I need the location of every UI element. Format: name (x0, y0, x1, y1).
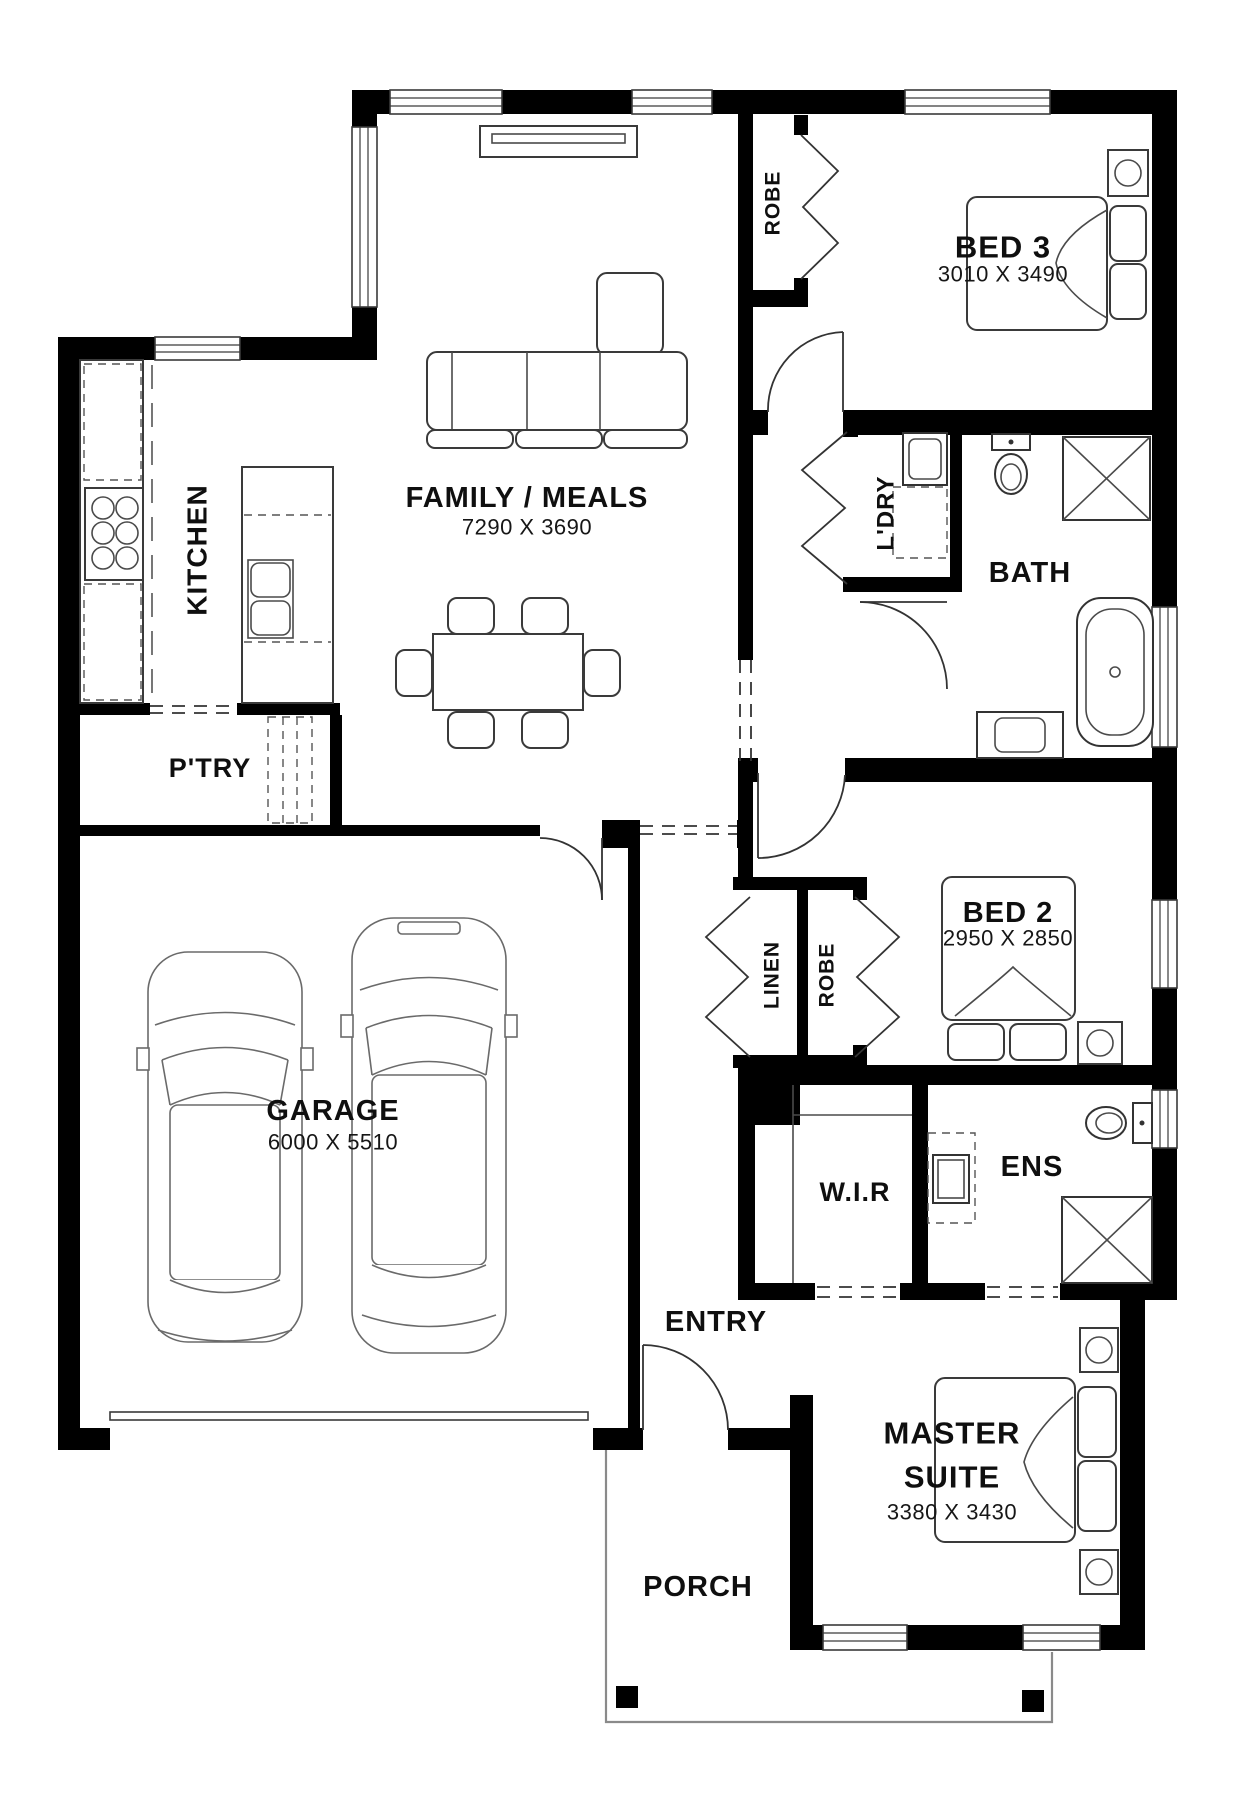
porch-post (616, 1686, 638, 1708)
shower (1063, 437, 1150, 520)
bath-fittings (977, 434, 1153, 758)
cooktop (85, 488, 143, 580)
room-label-laundry: L'DRY (873, 475, 900, 550)
island-bench (242, 467, 333, 703)
room-label-family: FAMILY / MEALS (406, 482, 649, 514)
dining-table (433, 634, 583, 710)
room-label-robe-bed2: ROBE (816, 943, 839, 1008)
room-label-garage: GARAGE (266, 1095, 399, 1127)
toilet (992, 434, 1030, 494)
room-dims-family: 7290 X 3690 (462, 515, 592, 540)
dining-chair (396, 650, 432, 696)
room-label-wir: W.I.R (820, 1177, 891, 1207)
tv-unit (480, 126, 637, 157)
window (1152, 607, 1177, 747)
door-garage (540, 838, 602, 900)
room-label-kitchen: KITCHEN (182, 484, 213, 615)
porch-post (1022, 1690, 1044, 1712)
vanity (928, 1133, 975, 1223)
dining-setting (396, 598, 620, 748)
room-label-bath: BATH (989, 557, 1071, 589)
dining-chair (522, 598, 568, 634)
pillow (1078, 1387, 1116, 1457)
floor-plan-drawing: FAMILY / MEALS 7290 X 3690 KITCHEN P'TRY… (0, 0, 1238, 1800)
bifold-door-robe-bed3 (801, 135, 838, 279)
pillow (1110, 264, 1146, 319)
window (155, 337, 240, 360)
room-label-ens: ENS (1001, 1151, 1064, 1183)
washing-machine (903, 433, 947, 485)
window (632, 90, 712, 114)
pantry-shelves (268, 717, 312, 823)
window (352, 127, 377, 307)
room-label-bed3: BED 3 (955, 230, 1051, 265)
room-label-pantry: P'TRY (169, 753, 251, 783)
window (1023, 1625, 1100, 1650)
vanity (977, 712, 1063, 758)
room-dims-bed3: 3010 X 3490 (938, 262, 1068, 287)
window (390, 90, 502, 114)
shower (1062, 1197, 1152, 1283)
bedside-table (1078, 1022, 1122, 1064)
laundry-bench (893, 487, 947, 558)
room-label-linen: LINEN (761, 941, 784, 1009)
window (1152, 1090, 1177, 1148)
bedside-table (1108, 150, 1148, 196)
room-dims-master: 3380 X 3430 (887, 1500, 1017, 1525)
bifold-door-laundry (802, 432, 847, 584)
dining-chair (448, 712, 494, 748)
bifold-door-robe-bed2 (855, 897, 899, 1057)
room-label-porch: PORCH (643, 1571, 753, 1603)
room-label-entry: ENTRY (665, 1306, 767, 1338)
pillow (948, 1024, 1004, 1060)
bifold-door-linen (706, 897, 750, 1057)
dining-chair (584, 650, 620, 696)
floor-plan: FAMILY / MEALS 7290 X 3690 KITCHEN P'TRY… (0, 0, 1238, 1800)
window (823, 1625, 907, 1650)
room-dims-bed2: 2950 X 2850 (943, 926, 1073, 951)
family-furniture (396, 126, 687, 748)
dining-chair (522, 712, 568, 748)
room-label-master-1: MASTER (884, 1416, 1021, 1451)
room-dims-garage: 6000 X 5510 (268, 1130, 398, 1155)
sofa (427, 273, 687, 448)
pillow (1110, 206, 1146, 261)
toilet (1086, 1103, 1152, 1143)
laundry-fittings (893, 433, 947, 558)
window (905, 90, 1050, 114)
room-label-bed2: BED 2 (963, 897, 1053, 929)
bathtub (1077, 598, 1153, 746)
pillow (1010, 1024, 1066, 1060)
door-bath (860, 602, 947, 689)
pillow (1078, 1461, 1116, 1531)
door-bed3 (768, 332, 843, 412)
garage-door (110, 1412, 588, 1420)
room-label-robe-bed3: ROBE (762, 171, 785, 236)
room-label-master-2: SUITE (904, 1460, 1000, 1495)
window (1152, 900, 1177, 988)
door-front (643, 1345, 728, 1430)
door-bed2 (758, 773, 845, 858)
dining-chair (448, 598, 494, 634)
